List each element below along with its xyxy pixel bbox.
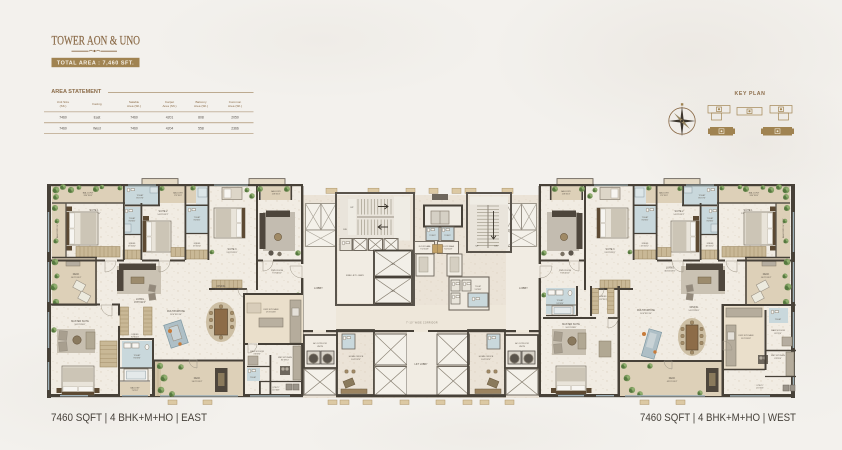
- svg-text:16'0"X20'0": 16'0"X20'0": [74, 324, 85, 326]
- svg-text:DECK: DECK: [763, 274, 770, 276]
- svg-text:LIFT LOBBY: LIFT LOBBY: [415, 364, 428, 366]
- svg-text:SUITE 3: SUITE 3: [605, 248, 615, 251]
- svg-text:17'4"X5'6": 17'4"X5'6": [756, 388, 764, 390]
- svg-text:14'4"X13'2": 14'4"X13'2": [673, 214, 684, 216]
- svg-text:DN: DN: [343, 229, 347, 231]
- svg-text:9'6"X8'6": 9'6"X8'6": [133, 358, 141, 360]
- svg-text:TOTAL AREA : 7,460 SFT.: TOTAL AREA : 7,460 SFT.: [57, 61, 134, 67]
- svg-text:LOBBY: LOBBY: [314, 286, 323, 290]
- svg-text:MASTER SUITE: MASTER SUITE: [562, 323, 580, 326]
- svg-text:SUITE 1: SUITE 1: [89, 209, 99, 212]
- svg-text:MULTIPURPOSE: MULTIPURPOSE: [637, 310, 655, 312]
- svg-text:8'0"X9'6": 8'0"X9'6": [774, 333, 782, 335]
- svg-text:11'8"X5'4": 11'8"X5'4": [272, 194, 281, 196]
- svg-text:TOILET: TOILET: [475, 286, 482, 288]
- svg-text:8'0"X7'6": 8'0"X7'6": [136, 198, 144, 200]
- svg-text:TOWER AON & UNO: TOWER AON & UNO: [52, 34, 141, 48]
- svg-text:14'4"X23'0": 14'4"X23'0": [215, 289, 227, 291]
- svg-text:SUITE 2: SUITE 2: [674, 210, 684, 213]
- svg-text:16'0"X15'10": 16'0"X15'10": [640, 313, 652, 315]
- svg-text:DRY KITCHEN: DRY KITCHEN: [739, 335, 754, 337]
- svg-text:HOME OFFICE: HOME OFFICE: [479, 356, 494, 358]
- svg-text:TOILET: TOILET: [557, 300, 565, 302]
- svg-text:7460: 7460: [59, 116, 67, 120]
- svg-text:7'4"X5'2": 7'4"X5'2": [132, 390, 139, 392]
- svg-text:DINING: DINING: [217, 285, 226, 288]
- svg-text:LIVING: LIVING: [136, 298, 144, 301]
- svg-text:MULTIPURPOSE: MULTIPURPOSE: [167, 311, 185, 313]
- svg-text:8'0"X7'6": 8'0"X7'6": [698, 198, 706, 200]
- svg-text:DRY KITCHEN: DRY KITCHEN: [264, 309, 279, 311]
- svg-text:17'4"X13'6": 17'4"X13'6": [266, 312, 276, 314]
- svg-text:TOILET: TOILET: [429, 235, 436, 237]
- svg-text:16'0"X15'10": 16'0"X15'10": [170, 314, 182, 316]
- svg-text:MAID'S ROOM: MAID'S ROOM: [771, 329, 785, 332]
- svg-text:6'6"X5'10": 6'6"X5'10": [641, 245, 649, 247]
- svg-text:DECK: DECK: [73, 274, 80, 276]
- svg-text:SUITE 3: SUITE 3: [227, 248, 237, 251]
- svg-text:Area (Sft.): Area (Sft.): [127, 104, 141, 108]
- svg-text:13'4"X22'0": 13'4"X22'0": [604, 252, 615, 254]
- svg-text:33'4"X8'6": 33'4"X8'6": [83, 195, 92, 197]
- svg-text:TOILET: TOILET: [775, 319, 782, 321]
- svg-text:11'4"X20'8": 11'4"X20'8": [741, 338, 751, 340]
- svg-text:7460 SQFT | 4 BHK+M+HO | EAST: 7460 SQFT | 4 BHK+M+HO | EAST: [51, 412, 207, 424]
- svg-text:UNITS: UNITS: [519, 346, 526, 348]
- svg-text:7'0"X10'10": 7'0"X10'10": [272, 273, 282, 275]
- svg-text:10'4"X12'4": 10'4"X12'4": [481, 359, 491, 361]
- svg-text:7460: 7460: [130, 126, 138, 130]
- svg-text:DECK: DECK: [194, 378, 201, 380]
- svg-text:6'6"X5'10": 6'6"X5'10": [128, 245, 136, 247]
- svg-text:17'4"X5'0": 17'4"X5'0": [174, 195, 183, 197]
- svg-text:14'4"X15'4": 14'4"X15'4": [761, 277, 772, 279]
- svg-text:2366: 2366: [231, 126, 239, 130]
- svg-text:14'4"X15'4": 14'4"X15'4": [71, 277, 82, 279]
- svg-text:BALCONY: BALCONY: [83, 192, 94, 195]
- svg-text:33'4"X8'6": 33'4"X8'6": [749, 195, 758, 197]
- svg-text:Area (Sft.): Area (Sft.): [228, 104, 242, 108]
- svg-text:30'0"X15'0": 30'0"X15'0": [664, 270, 675, 272]
- svg-text:AC OUTDOOR: AC OUTDOOR: [515, 342, 529, 345]
- svg-text:4201: 4201: [166, 116, 174, 120]
- svg-text:SUITE 2: SUITE 2: [158, 210, 168, 213]
- svg-text:East: East: [94, 116, 101, 120]
- svg-text:56'4"X15'4": 56'4"X15'4": [192, 381, 203, 383]
- svg-text:KEY PLAN: KEY PLAN: [735, 91, 766, 97]
- svg-text:2050: 2050: [231, 116, 239, 120]
- svg-text:BALCONY: BALCONY: [561, 190, 571, 193]
- svg-text:7460 SQFT | 4 BHK+M+HO | WEST: 7460 SQFT | 4 BHK+M+HO | WEST: [640, 412, 796, 424]
- svg-text:4204: 4204: [166, 126, 174, 130]
- svg-text:AC OUTDOOR: AC OUTDOOR: [313, 342, 327, 345]
- svg-text:17'4"X5'0": 17'4"X5'0": [660, 195, 669, 197]
- svg-text:DECK: DECK: [669, 378, 676, 380]
- svg-text:7'10"X10'8": 7'10"X10'8": [444, 249, 453, 251]
- svg-text:TOILET: TOILET: [444, 235, 451, 237]
- svg-text:Area (Sft.): Area (Sft.): [194, 104, 208, 108]
- svg-text:14'4"X23'0": 14'4"X23'0": [688, 310, 699, 312]
- svg-text:15'8"X21'0": 15'8"X21'0": [134, 302, 146, 304]
- svg-text:11'8"X5'4": 11'8"X5'4": [562, 194, 571, 196]
- svg-text:SUITE 1: SUITE 1: [743, 209, 753, 212]
- svg-text:8'0"X6'6": 8'0"X6'6": [707, 220, 714, 222]
- svg-text:7'10"X10'8": 7'10"X10'8": [420, 249, 429, 251]
- svg-text:LOBBY: LOBBY: [519, 286, 528, 290]
- svg-text:7460: 7460: [130, 116, 138, 120]
- svg-text:808: 808: [198, 116, 204, 120]
- svg-text:12'4"X5'6": 12'4"X5'6": [272, 389, 280, 391]
- svg-text:LIFT: LIFT: [391, 264, 396, 266]
- svg-text:West: West: [93, 126, 101, 130]
- svg-text:LIFT: LIFT: [391, 291, 396, 293]
- svg-text:7'0"X10'10": 7'0"X10'10": [560, 273, 570, 275]
- svg-text:BALCONY: BALCONY: [749, 192, 760, 195]
- svg-text:7'-10" WIDE CORRIDOR: 7'-10" WIDE CORRIDOR: [406, 323, 438, 325]
- svg-text:Area (Sft.): Area (Sft.): [162, 104, 176, 108]
- svg-text:HOME OFFICE: HOME OFFICE: [349, 356, 364, 358]
- svg-text:DINING: DINING: [690, 306, 699, 309]
- svg-text:8'3"X9'6": 8'3"X9'6": [774, 358, 782, 360]
- svg-text:6'6"X5'10": 6'6"X5'10": [706, 245, 714, 247]
- svg-text:BALCONY: BALCONY: [271, 190, 281, 193]
- svg-text:10'4"X12'4": 10'4"X12'4": [351, 359, 361, 361]
- svg-text:13'4"X22'0": 13'4"X22'0": [226, 252, 237, 254]
- svg-text:558: 558: [198, 126, 204, 130]
- svg-text:8'0"X6'6": 8'0"X6'6": [642, 219, 649, 221]
- svg-text:TOILET: TOILET: [250, 377, 257, 379]
- svg-text:8'0"X6'6": 8'0"X6'6": [129, 220, 136, 222]
- svg-text:8'0"X6'6": 8'0"X6'6": [194, 219, 201, 221]
- svg-text:(Sft.): (Sft.): [60, 104, 67, 108]
- svg-text:16'0"X20'0": 16'0"X20'0": [565, 327, 576, 329]
- svg-text:AREA STATEMENT: AREA STATEMENT: [51, 89, 102, 95]
- svg-text:MASTER SUITE: MASTER SUITE: [71, 320, 89, 323]
- svg-text:7'4"X8'6": 7'4"X8'6": [253, 354, 261, 356]
- svg-text:LIVING: LIVING: [666, 267, 674, 270]
- svg-text:14'4"X13'2": 14'4"X13'2": [157, 214, 168, 216]
- svg-text:WET KITCHEN: WET KITCHEN: [771, 355, 785, 357]
- svg-text:FIRE LIFT LOBBY: FIRE LIFT LOBBY: [346, 275, 364, 277]
- svg-text:42'0"X15'4": 42'0"X15'4": [667, 381, 678, 383]
- svg-text:6'6"X5'10": 6'6"X5'10": [193, 245, 201, 247]
- svg-text:11'6"X9'4": 11'6"X9'4": [599, 299, 607, 301]
- svg-text:DRESS: DRESS: [600, 296, 608, 298]
- svg-text:8'4"X9'10": 8'4"X9'10": [281, 360, 290, 362]
- svg-text:Facing: Facing: [92, 102, 102, 106]
- svg-text:7460: 7460: [59, 126, 67, 130]
- svg-text:UNITS: UNITS: [317, 346, 324, 348]
- svg-text:5'0"X8'6": 5'0"X8'6": [475, 289, 482, 291]
